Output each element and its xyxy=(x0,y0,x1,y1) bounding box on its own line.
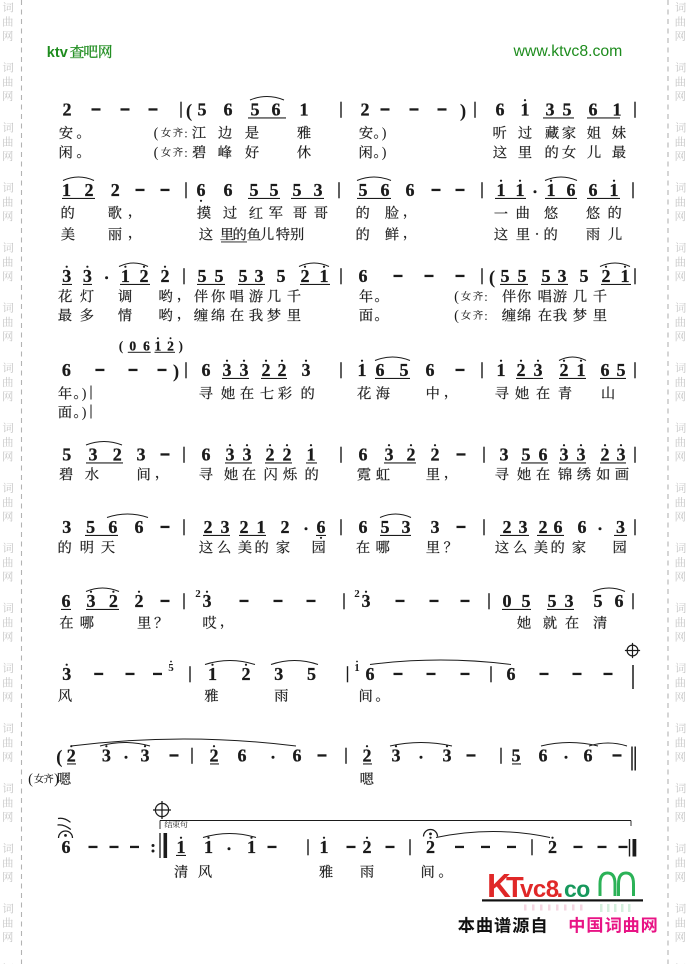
svg-text:(: ( xyxy=(489,268,495,289)
svg-text:(: ( xyxy=(454,289,459,305)
svg-text:(: ( xyxy=(28,772,33,788)
svg-text:1: 1 xyxy=(155,339,162,354)
svg-text:3: 3 xyxy=(385,445,394,465)
svg-text:6: 6 xyxy=(293,746,302,766)
svg-text:6: 6 xyxy=(589,180,598,200)
svg-text:1: 1 xyxy=(247,837,256,857)
svg-text:1: 1 xyxy=(208,664,217,684)
svg-text::: : xyxy=(484,309,487,323)
svg-text:6: 6 xyxy=(539,746,548,766)
svg-text:5: 5 xyxy=(501,266,510,286)
svg-text:): ) xyxy=(178,339,183,354)
svg-text:5: 5 xyxy=(250,180,259,200)
svg-text:3: 3 xyxy=(255,266,264,286)
svg-text:5: 5 xyxy=(548,591,557,611)
svg-text:2: 2 xyxy=(266,445,275,465)
svg-text:6: 6 xyxy=(62,591,71,611)
svg-text:): ) xyxy=(82,386,87,402)
svg-text:6: 6 xyxy=(507,664,516,684)
svg-text:6: 6 xyxy=(578,517,587,537)
svg-text:6: 6 xyxy=(589,100,598,120)
svg-text:2: 2 xyxy=(503,517,512,537)
svg-text:6: 6 xyxy=(567,180,576,200)
svg-text:2: 2 xyxy=(548,837,557,857)
svg-text:2: 2 xyxy=(113,445,122,465)
svg-text:3: 3 xyxy=(89,445,98,465)
svg-text:3: 3 xyxy=(402,517,411,537)
svg-text:5: 5 xyxy=(251,100,260,120)
svg-text:3: 3 xyxy=(431,517,440,537)
svg-text:2: 2 xyxy=(602,266,611,286)
svg-text:vc8: vc8 xyxy=(520,876,559,903)
svg-text:5: 5 xyxy=(563,100,572,120)
svg-text:3: 3 xyxy=(62,664,71,684)
svg-text::: : xyxy=(184,146,187,160)
svg-text:6: 6 xyxy=(135,517,144,537)
svg-text:1: 1 xyxy=(320,266,329,286)
svg-text:(: ( xyxy=(56,747,62,768)
svg-text:0: 0 xyxy=(129,339,136,354)
svg-text:1: 1 xyxy=(358,360,367,380)
svg-text:1: 1 xyxy=(613,100,622,120)
svg-text:(: ( xyxy=(454,308,459,324)
svg-text:2: 2 xyxy=(140,266,149,286)
svg-text:5: 5 xyxy=(277,266,286,286)
svg-text:3: 3 xyxy=(62,517,71,537)
svg-text:5: 5 xyxy=(580,266,589,286)
svg-text:5: 5 xyxy=(617,360,626,380)
svg-text:1: 1 xyxy=(257,517,266,537)
svg-text:5: 5 xyxy=(518,266,527,286)
svg-text:6: 6 xyxy=(496,100,505,120)
svg-text:3: 3 xyxy=(302,360,311,380)
svg-text:1: 1 xyxy=(497,180,506,200)
svg-text:5: 5 xyxy=(198,100,207,120)
svg-text:6: 6 xyxy=(539,445,548,465)
svg-text:6: 6 xyxy=(224,100,233,120)
svg-text:1: 1 xyxy=(177,837,186,857)
svg-text:2: 2 xyxy=(67,746,76,766)
svg-text:3: 3 xyxy=(240,360,249,380)
svg-text:(: ( xyxy=(154,126,159,142)
svg-text:): ) xyxy=(382,145,387,161)
svg-text:2: 2 xyxy=(161,266,170,286)
svg-text:5: 5 xyxy=(239,266,248,286)
svg-text:1: 1 xyxy=(121,266,130,286)
svg-text:3: 3 xyxy=(223,360,232,380)
svg-text:3: 3 xyxy=(577,445,586,465)
svg-text:6: 6 xyxy=(406,180,415,200)
svg-text:2: 2 xyxy=(111,180,120,200)
svg-text:(: ( xyxy=(186,101,192,122)
svg-text:3: 3 xyxy=(565,591,574,611)
svg-text:1: 1 xyxy=(621,266,630,286)
svg-text:1: 1 xyxy=(610,180,619,200)
svg-text:6: 6 xyxy=(62,360,71,380)
svg-text:3: 3 xyxy=(137,445,146,465)
svg-text:5: 5 xyxy=(270,180,279,200)
svg-text:6: 6 xyxy=(554,517,563,537)
svg-text:5: 5 xyxy=(542,266,551,286)
svg-text:3: 3 xyxy=(362,591,371,611)
svg-text:1: 1 xyxy=(300,100,309,120)
svg-text:(: ( xyxy=(154,145,159,161)
svg-text:2: 2 xyxy=(242,664,251,684)
svg-text:.: . xyxy=(557,876,564,903)
svg-text:3: 3 xyxy=(392,746,401,766)
svg-text:6: 6 xyxy=(272,100,281,120)
svg-text:6: 6 xyxy=(143,339,150,354)
svg-text:2: 2 xyxy=(210,746,219,766)
svg-text:6: 6 xyxy=(62,837,71,857)
svg-text:3: 3 xyxy=(617,445,626,465)
svg-text:6: 6 xyxy=(359,266,368,286)
svg-text:3: 3 xyxy=(534,360,543,380)
svg-text:(: ( xyxy=(119,339,124,354)
svg-text:3: 3 xyxy=(443,746,452,766)
svg-text:2: 2 xyxy=(135,591,144,611)
svg-text:ktv: ktv xyxy=(47,45,68,61)
svg-text:3: 3 xyxy=(243,445,252,465)
svg-text:6: 6 xyxy=(615,591,624,611)
svg-text:6: 6 xyxy=(584,746,593,766)
svg-text:5: 5 xyxy=(381,517,390,537)
svg-text:): ) xyxy=(382,126,387,142)
svg-text:www.ktvc8.com: www.ktvc8.com xyxy=(513,43,623,60)
svg-text:): ) xyxy=(82,405,87,421)
svg-text:3: 3 xyxy=(274,664,283,684)
svg-text:2: 2 xyxy=(301,266,310,286)
svg-text:3: 3 xyxy=(62,266,71,286)
svg-text:6: 6 xyxy=(381,180,390,200)
svg-text:5: 5 xyxy=(522,591,531,611)
svg-text:3: 3 xyxy=(500,445,509,465)
svg-text:5: 5 xyxy=(293,180,302,200)
svg-text:2: 2 xyxy=(354,588,360,600)
svg-text:5: 5 xyxy=(512,746,521,766)
svg-text:2: 2 xyxy=(407,445,416,465)
svg-text:6: 6 xyxy=(601,360,610,380)
svg-text:3: 3 xyxy=(546,100,555,120)
svg-text:5: 5 xyxy=(400,360,409,380)
svg-text:2: 2 xyxy=(262,360,271,380)
svg-text:1: 1 xyxy=(354,662,360,674)
svg-text:6: 6 xyxy=(202,445,211,465)
svg-text:6: 6 xyxy=(202,360,211,380)
svg-text:2: 2 xyxy=(195,588,201,600)
svg-text:5: 5 xyxy=(198,266,207,286)
svg-text:): ) xyxy=(173,362,179,383)
svg-text:3: 3 xyxy=(87,591,96,611)
svg-text:3: 3 xyxy=(221,517,230,537)
svg-text:5: 5 xyxy=(359,180,368,200)
svg-text:2: 2 xyxy=(431,445,440,465)
svg-text:6: 6 xyxy=(359,445,368,465)
svg-text:2: 2 xyxy=(363,837,372,857)
svg-text:5: 5 xyxy=(522,445,531,465)
svg-text:6: 6 xyxy=(366,664,375,684)
svg-text:1: 1 xyxy=(547,180,556,200)
svg-text:1: 1 xyxy=(497,360,506,380)
svg-text:1: 1 xyxy=(62,180,71,200)
svg-text:6: 6 xyxy=(224,180,233,200)
svg-text:2: 2 xyxy=(363,746,372,766)
svg-text:2: 2 xyxy=(517,360,526,380)
svg-text:3: 3 xyxy=(141,746,150,766)
svg-text:): ) xyxy=(460,101,466,122)
svg-text:5: 5 xyxy=(62,445,71,465)
svg-text:1: 1 xyxy=(204,837,213,857)
svg-text:5: 5 xyxy=(86,517,95,537)
svg-text:6: 6 xyxy=(426,360,435,380)
svg-text:2: 2 xyxy=(204,517,213,537)
svg-text:6: 6 xyxy=(197,180,206,200)
svg-text:6: 6 xyxy=(317,517,326,537)
svg-text:3: 3 xyxy=(226,445,235,465)
svg-text:3: 3 xyxy=(102,746,111,766)
svg-text:2: 2 xyxy=(539,517,548,537)
svg-text:2: 2 xyxy=(426,837,435,857)
svg-text:3: 3 xyxy=(83,266,92,286)
svg-text:3: 3 xyxy=(558,266,567,286)
svg-text:5: 5 xyxy=(215,266,224,286)
svg-text:3: 3 xyxy=(203,591,212,611)
svg-text:5: 5 xyxy=(307,664,316,684)
svg-text:2: 2 xyxy=(283,445,292,465)
svg-text:6: 6 xyxy=(376,360,385,380)
svg-text:2: 2 xyxy=(240,517,249,537)
svg-text:2: 2 xyxy=(167,339,174,354)
svg-text:2: 2 xyxy=(560,360,569,380)
svg-text:2: 2 xyxy=(361,100,370,120)
svg-text:2: 2 xyxy=(281,517,290,537)
svg-text:2: 2 xyxy=(63,100,72,120)
svg-text:6: 6 xyxy=(108,517,117,537)
svg-text:1: 1 xyxy=(577,360,586,380)
svg-text:6: 6 xyxy=(359,517,368,537)
svg-text::: : xyxy=(184,127,187,141)
svg-text:3: 3 xyxy=(560,445,569,465)
svg-text:6: 6 xyxy=(238,746,247,766)
svg-text:1: 1 xyxy=(521,100,530,120)
svg-text::: : xyxy=(484,290,487,304)
svg-text:0: 0 xyxy=(503,591,512,611)
svg-text:2: 2 xyxy=(85,180,94,200)
svg-text:co: co xyxy=(564,876,590,902)
svg-text:1: 1 xyxy=(307,445,316,465)
svg-text:5: 5 xyxy=(168,662,174,674)
svg-text:5: 5 xyxy=(594,591,603,611)
svg-text:3: 3 xyxy=(314,180,323,200)
svg-text:1: 1 xyxy=(516,180,525,200)
svg-text:2: 2 xyxy=(109,591,118,611)
svg-text:3: 3 xyxy=(616,517,625,537)
svg-text:3: 3 xyxy=(519,517,528,537)
svg-text:1: 1 xyxy=(320,837,329,857)
svg-text:2: 2 xyxy=(601,445,610,465)
svg-text:2: 2 xyxy=(278,360,287,380)
